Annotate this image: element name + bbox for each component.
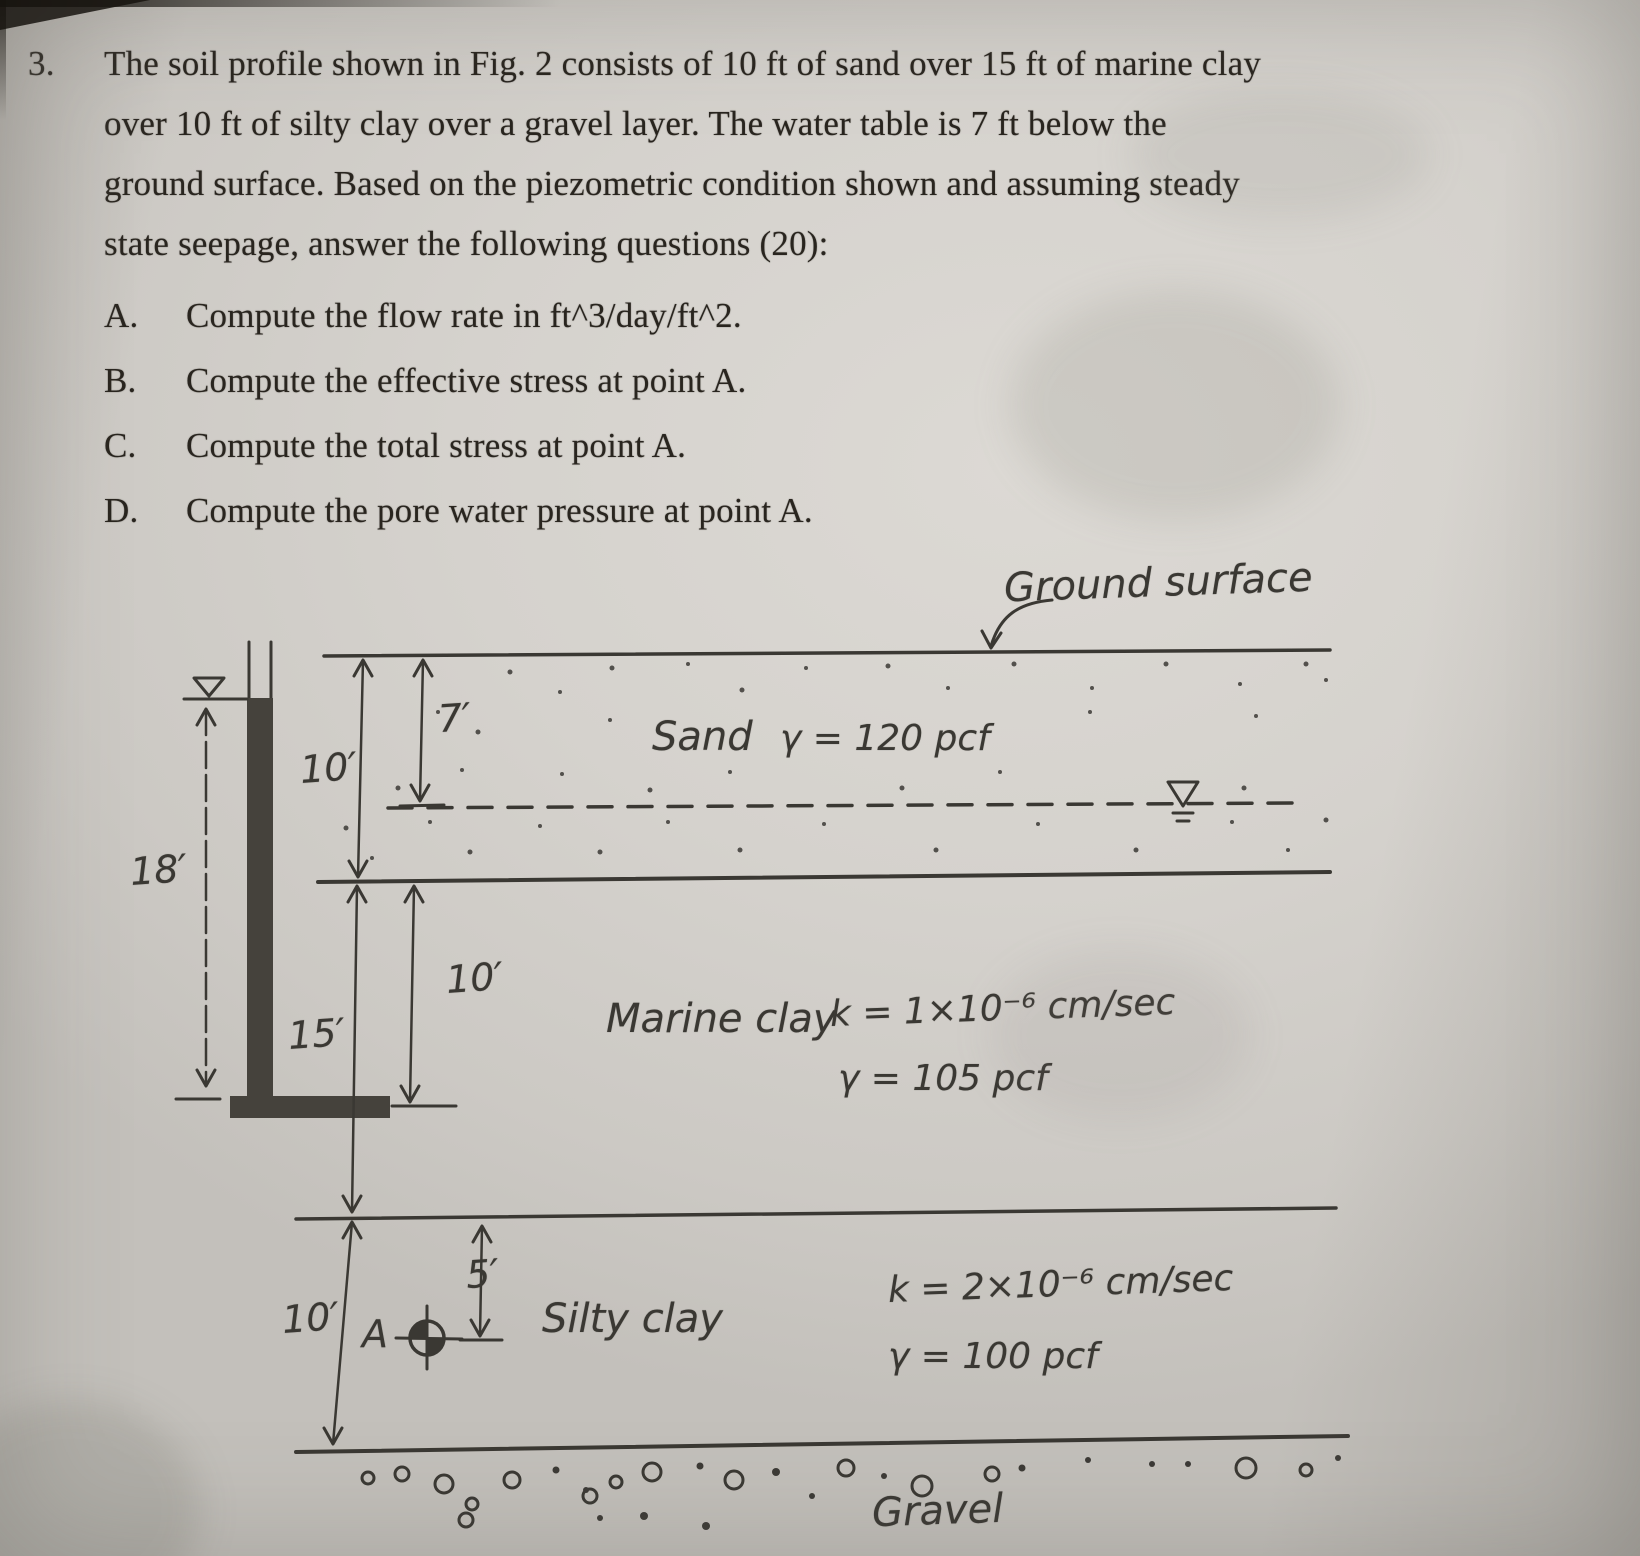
water-table-line: [388, 803, 1298, 808]
dim-5ft-label: 5′: [465, 1251, 501, 1297]
sand-bottom-line: [318, 872, 1330, 882]
water-table-icon: [1168, 782, 1198, 821]
piezometer-foot: [230, 1096, 390, 1118]
silty-clay-unit-weight: γ = 100 pcf: [888, 1336, 1098, 1377]
point-a-target-icon: [396, 1306, 462, 1369]
dim-10ft-marine-label: 10′: [445, 954, 505, 1002]
silty-clay-label: Silty clay: [542, 1296, 723, 1342]
dim-10ft-silty-label: 10′: [281, 1294, 341, 1342]
gravel-top-line: [296, 1436, 1348, 1452]
dim-10ft-sand-label: 10′: [299, 744, 359, 792]
dim-15ft-label: 15′: [287, 1010, 347, 1058]
soil-profile-figure: [0, 0, 1640, 1556]
scanned-exam-page: 3. The soil profile shown in Fig. 2 cons…: [0, 0, 1640, 1556]
piezometer-water-column: [247, 698, 273, 1100]
marine-clay-bottom-line: [296, 1208, 1336, 1219]
dimension-7ft: [400, 660, 444, 806]
sand-label: Sand: [652, 714, 753, 760]
piezometer-water-level-icon: [184, 678, 247, 699]
sand-dots: [344, 662, 1329, 861]
point-a-label: A: [362, 1312, 388, 1356]
gravel-dots: [362, 1455, 1341, 1530]
dim-7ft-label: 7′: [437, 695, 473, 741]
dimension-15ft-marine: [343, 886, 366, 1212]
gravel-label: Gravel: [871, 1486, 1004, 1537]
ground-surface-line: [324, 650, 1330, 656]
sand-unit-weight: γ = 120 pcf: [780, 718, 990, 759]
marine-clay-label: Marine clay: [606, 996, 837, 1042]
dim-18ft-label: 18′: [129, 846, 189, 894]
marine-clay-unit-weight: γ = 105 pcf: [838, 1058, 1048, 1099]
dimension-18ft: [176, 709, 220, 1099]
